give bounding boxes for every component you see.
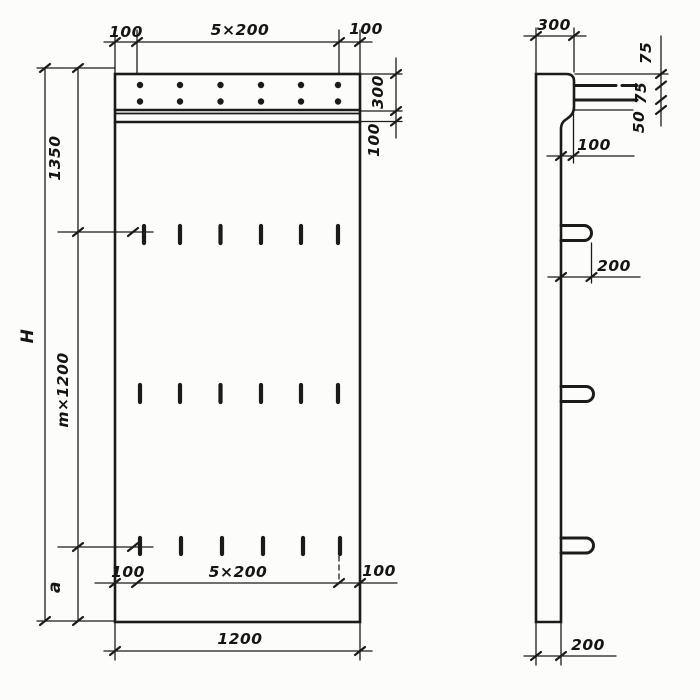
dim-label-top-spacing: 5×200 (211, 21, 270, 39)
lower-inner-dimension: 100 5×200 100 (95, 556, 397, 587)
slot-row-middle (140, 385, 338, 402)
dim-label-lower-left-margin: 100 (111, 563, 145, 581)
slot-row-upper (144, 226, 338, 243)
panel-outline (115, 74, 360, 622)
top-band-lines (115, 110, 360, 122)
lifting-loop-lower (561, 538, 594, 553)
front-view-dimensions: 100 5×200 100 300 100 (18, 20, 402, 660)
reinforcement-dots (137, 82, 341, 105)
slot-row-lower (140, 538, 340, 554)
panel-drawing: 100 5×200 100 300 100 (0, 0, 700, 700)
front-view (115, 74, 360, 622)
band-dimension: 300 100 (360, 58, 402, 157)
dim-label-dowel-spacing: 75 (632, 82, 650, 105)
bottom-width-dimension: 1200 (104, 622, 372, 660)
dim-label-upper-height: 1350 (46, 135, 64, 180)
dim-label-overall-height: H (18, 329, 38, 344)
dim-label-band-strip: 100 (365, 123, 383, 157)
dim-label-loop-projection: 200 (597, 257, 631, 275)
dim-label-lower-spacing: 5×200 (209, 563, 268, 581)
side-bottom-dimension: 200 (524, 622, 616, 665)
dim-label-dowel-top-offset: 75 (637, 42, 655, 65)
dim-label-top-left-margin: 100 (109, 23, 143, 41)
dim-label-top-thickness: 300 (537, 16, 571, 34)
dim-label-module-height: m×1200 (54, 352, 72, 427)
dim-label-panel-width: 1200 (217, 630, 262, 648)
dim-label-flange-overhang: 100 (577, 136, 611, 154)
dowel-bars (575, 86, 637, 111)
lifting-loop-middle (561, 387, 594, 402)
top-dimension: 100 5×200 100 (104, 20, 383, 73)
side-view-dimensions: 300 75 75 50 100 200 (524, 16, 668, 665)
dim-label-rib-thickness: 200 (571, 636, 605, 654)
dim-label-dowel-bottom-offset: 50 (630, 111, 648, 134)
technical-drawing-sheet: 100 5×200 100 300 100 (0, 0, 700, 700)
dim-label-lower-height: a (45, 581, 65, 593)
dim-label-lower-right-margin: 100 (362, 562, 396, 580)
height-dimensions: H 1350 m×1200 a (18, 64, 153, 625)
side-top-dimension: 300 (524, 16, 586, 73)
lifting-loop-upper (561, 226, 592, 241)
dim-label-band-height: 300 (369, 75, 387, 109)
dim-label-top-right-margin: 100 (349, 20, 383, 38)
